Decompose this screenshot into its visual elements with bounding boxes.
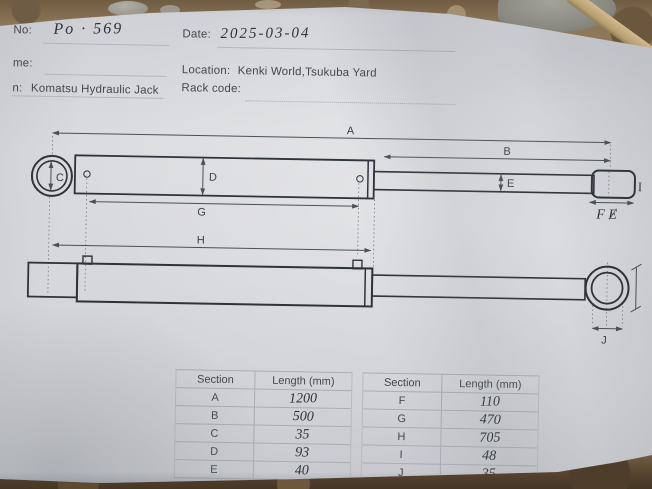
dim-label-I: I bbox=[638, 179, 643, 194]
column-header-section: Section bbox=[176, 370, 255, 389]
dim-line-G bbox=[89, 202, 358, 207]
length-cell: 705 bbox=[441, 428, 538, 448]
dim-label-D: D bbox=[209, 172, 217, 184]
projection-lines bbox=[47, 135, 625, 327]
pin-hole-left bbox=[84, 171, 91, 178]
length-cell: 110 bbox=[441, 392, 538, 412]
form-content: No: Po · 569 Date: 2025-03-04 me: Locati… bbox=[0, 0, 652, 489]
pin-hole-right bbox=[357, 176, 364, 183]
dim-line-F bbox=[590, 202, 634, 203]
cylinder-body-side bbox=[77, 263, 373, 306]
length-cell: 48 bbox=[440, 446, 537, 466]
column-header-section: Section bbox=[363, 373, 442, 392]
rod-end-block bbox=[592, 170, 635, 198]
length-cell: 93 bbox=[253, 443, 350, 463]
dim-line-J bbox=[592, 328, 622, 329]
length-cell: 470 bbox=[441, 410, 538, 430]
dim-label-H: H bbox=[197, 234, 205, 246]
base-block bbox=[28, 263, 78, 298]
column-header-length: Length (mm) bbox=[442, 374, 539, 394]
dim-label-C: C bbox=[56, 172, 64, 184]
length-cell: 35 bbox=[254, 425, 351, 445]
piston-rod-side bbox=[372, 275, 585, 300]
dim-label-G: G bbox=[197, 206, 206, 218]
section-cell: F bbox=[362, 391, 441, 410]
length-cell: 1200 bbox=[254, 389, 351, 409]
dim-label-A: A bbox=[347, 125, 355, 137]
cylinder-cap-line-side bbox=[365, 268, 366, 306]
piston-rod bbox=[374, 172, 594, 194]
dimension-table-right: Section Length (mm) F 110 G 470 bbox=[361, 372, 540, 484]
dim-line-H bbox=[53, 245, 371, 251]
dim-line-B bbox=[384, 157, 610, 161]
dim-label-F-handwritten: F Ɇ bbox=[595, 206, 617, 222]
dim-line-D bbox=[203, 159, 204, 195]
dim-label-J: J bbox=[601, 335, 607, 347]
length-cell: 40 bbox=[253, 461, 350, 481]
measurement-tables: Section Length (mm) A 1200 B 500 bbox=[174, 369, 540, 484]
dim-label-E: E bbox=[507, 178, 515, 190]
hydraulic-jack-drawing: A B C D E G H F Ɇ I bbox=[0, 0, 652, 371]
cylinder-body bbox=[75, 155, 375, 198]
cylinder-cap-line bbox=[368, 160, 369, 198]
dimension-table-left: Section Length (mm) A 1200 B 500 bbox=[174, 369, 353, 481]
section-cell: C bbox=[175, 424, 254, 443]
dim-label-B: B bbox=[503, 146, 511, 158]
section-cell: G bbox=[362, 409, 441, 428]
dim-line-A bbox=[53, 133, 611, 143]
column-header-length: Length (mm) bbox=[255, 371, 352, 391]
bottom-view bbox=[28, 255, 629, 311]
length-cell: 500 bbox=[254, 407, 351, 427]
pebble bbox=[255, 0, 281, 9]
table-row: E 40 bbox=[174, 460, 350, 481]
photo-scene: No: Po · 569 Date: 2025-03-04 me: Locati… bbox=[0, 0, 652, 489]
dimension-lines: A B C D E G H F Ɇ I bbox=[48, 120, 644, 347]
section-cell: I bbox=[361, 445, 440, 464]
dim-line-eye-height bbox=[636, 267, 637, 309]
section-cell: E bbox=[174, 460, 253, 479]
section-cell: B bbox=[175, 406, 254, 425]
section-cell: H bbox=[362, 427, 441, 446]
paper-sheet: No: Po · 569 Date: 2025-03-04 me: Locati… bbox=[0, 0, 652, 489]
section-cell: D bbox=[175, 442, 254, 461]
section-cell: A bbox=[175, 388, 254, 407]
top-view bbox=[32, 155, 636, 207]
